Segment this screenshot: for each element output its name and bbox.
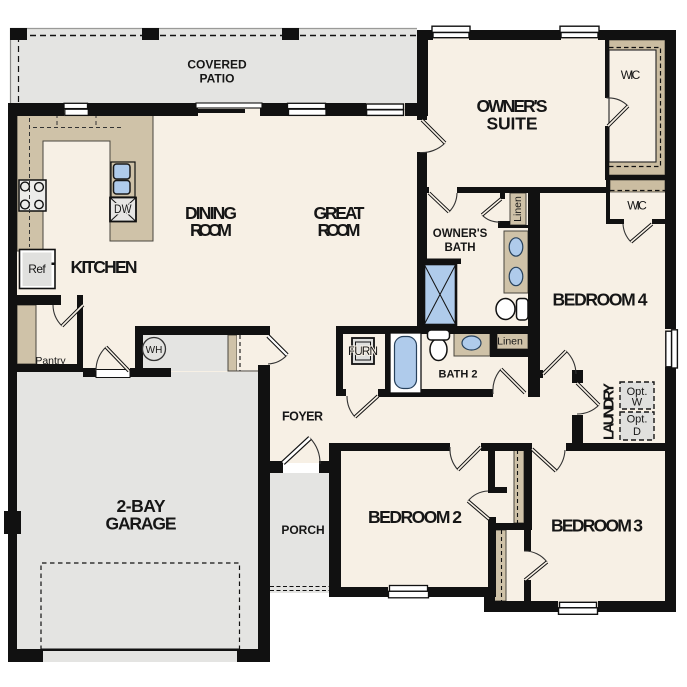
svg-text:FURN: FURN <box>348 344 378 358</box>
svg-text:BEDROOM 2: BEDROOM 2 <box>368 507 462 527</box>
svg-text:BEDROOM 3: BEDROOM 3 <box>551 516 643 536</box>
svg-text:COVERED: COVERED <box>187 58 247 72</box>
svg-text:KITCHEN: KITCHEN <box>71 257 138 277</box>
svg-text:ROOM: ROOM <box>190 220 232 240</box>
svg-text:Linen: Linen <box>497 336 523 348</box>
svg-text:OWNER'S: OWNER'S <box>433 228 488 240</box>
svg-text:WH: WH <box>146 345 163 356</box>
svg-text:SUITE: SUITE <box>487 114 538 134</box>
svg-text:Opt.: Opt. <box>627 414 648 426</box>
svg-text:Ref: Ref <box>28 262 46 276</box>
svg-text:W: W <box>632 397 643 409</box>
svg-text:WIC: WIC <box>621 68 641 82</box>
svg-text:PATIO: PATIO <box>200 72 235 86</box>
svg-text:Pantry: Pantry <box>35 355 66 367</box>
svg-text:D: D <box>633 426 641 438</box>
svg-text:FOYER: FOYER <box>282 410 323 424</box>
svg-text:WIC: WIC <box>627 199 647 213</box>
svg-text:PORCH: PORCH <box>281 523 324 537</box>
svg-text:BEDROOM 4: BEDROOM 4 <box>553 290 648 310</box>
svg-text:BATH: BATH <box>444 242 475 254</box>
svg-text:ROOM: ROOM <box>318 220 361 240</box>
svg-text:GARAGE: GARAGE <box>106 514 177 534</box>
svg-text:DW: DW <box>114 202 132 216</box>
svg-text:LAUNDRY: LAUNDRY <box>601 383 618 440</box>
svg-text:Linen: Linen <box>512 196 524 222</box>
svg-text:BATH 2: BATH 2 <box>439 369 478 381</box>
